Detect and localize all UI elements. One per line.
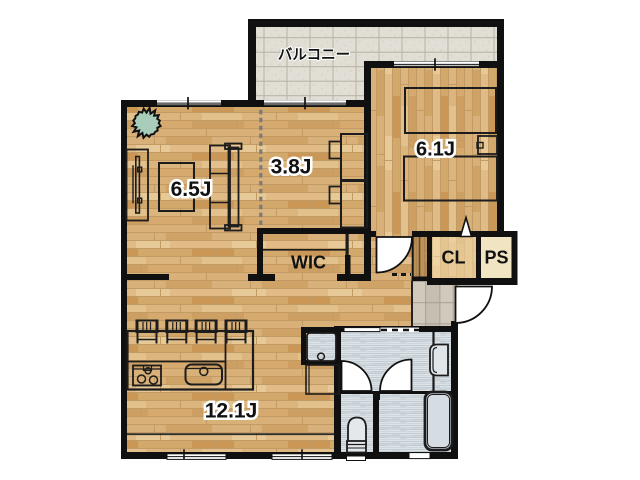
svg-text:CL: CL bbox=[442, 248, 466, 268]
svg-text:6.1J: 6.1J bbox=[416, 139, 455, 161]
svg-text:バルコニー: バルコニー bbox=[278, 47, 350, 64]
svg-text:PS: PS bbox=[484, 248, 508, 268]
svg-text:3.8J: 3.8J bbox=[271, 156, 312, 179]
svg-text:6.5J: 6.5J bbox=[171, 178, 212, 201]
svg-text:WIC: WIC bbox=[291, 253, 326, 273]
svg-text:12.1J: 12.1J bbox=[205, 400, 258, 423]
